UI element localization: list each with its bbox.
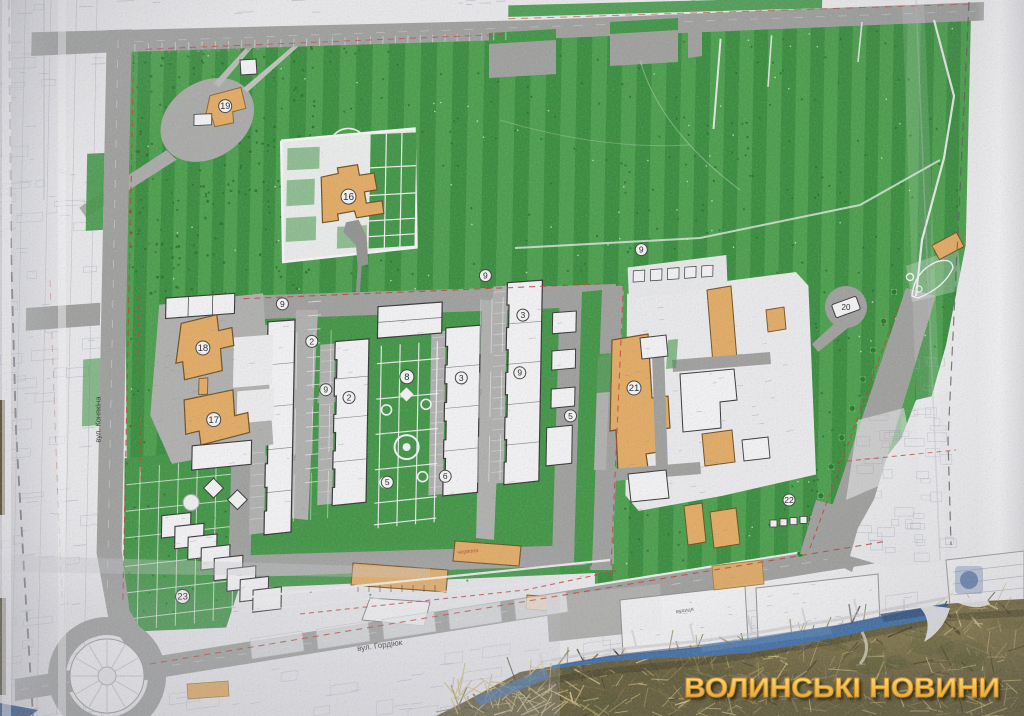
svg-text:ВОЛИНСЬКІ НОВИНИ: ВОЛИНСЬКІ НОВИНИ bbox=[684, 672, 1000, 703]
